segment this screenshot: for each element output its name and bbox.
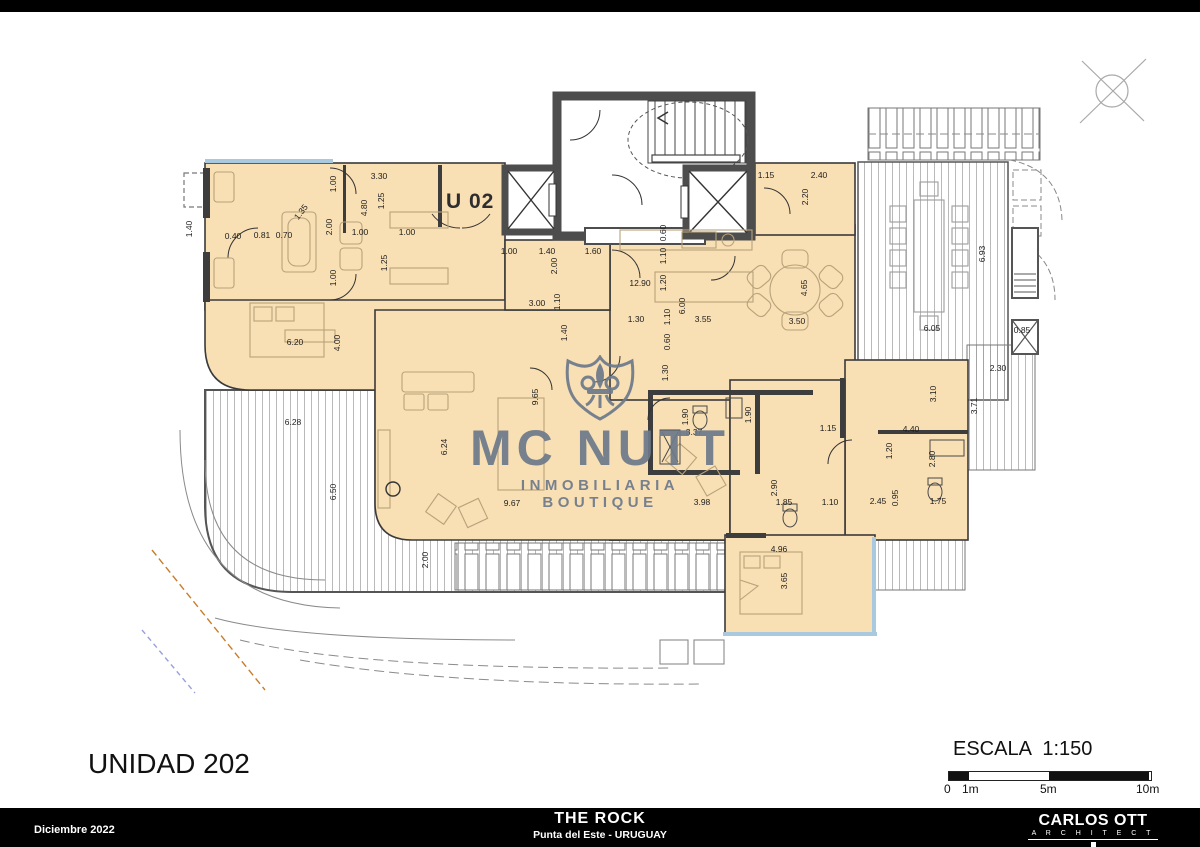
- dim-label: 1.10: [663, 309, 672, 326]
- service-elevator-right: [1012, 228, 1038, 354]
- dim-label: 2.00: [550, 258, 559, 275]
- dim-label: 1.25: [377, 193, 386, 210]
- dim-label: 3.71: [970, 398, 979, 415]
- dim-label: 1.40: [185, 221, 194, 238]
- dim-label: 6.20: [287, 338, 304, 347]
- dim-label: 2.45: [870, 497, 887, 506]
- dim-label: 1.60: [585, 247, 602, 256]
- architect-subtitle: A R C H I T E C T: [1028, 830, 1158, 840]
- dim-label: 3.30: [371, 172, 388, 181]
- dim-label: 4.80: [360, 200, 369, 217]
- dim-label: 4.00: [333, 335, 342, 352]
- dim-label: 0.60: [659, 225, 668, 242]
- dim-label: 1.00: [501, 247, 518, 256]
- dim-label: 1.15: [820, 424, 837, 433]
- scale-bar-ticks: 01m5m10m: [940, 782, 1160, 796]
- north-compass-icon: [1080, 59, 1146, 123]
- dim-label: 1.00: [399, 228, 416, 237]
- dim-label: 1.75: [930, 497, 947, 506]
- dim-label: 2.00: [325, 219, 334, 236]
- project-name: THE ROCK: [0, 810, 1200, 828]
- dim-label: 1.10: [553, 294, 562, 311]
- dim-label: 2.80: [928, 451, 937, 468]
- dim-label: 9.67: [504, 499, 521, 508]
- dim-label: 1.00: [329, 270, 338, 287]
- dim-label: 1.30: [628, 315, 645, 324]
- dim-label: 1.10: [822, 498, 839, 507]
- dim-label: 6.93: [978, 246, 987, 263]
- scale-tick: 5m: [1040, 782, 1057, 796]
- dim-label: 6.05: [924, 324, 941, 333]
- project-location: Punta del Este - URUGUAY: [0, 829, 1200, 841]
- dim-label: 1.90: [681, 409, 690, 426]
- unit-tag-label: U 02: [446, 190, 494, 214]
- dim-label: 2.30: [990, 364, 1007, 373]
- title-block-footer: Diciembre 2022 THE ROCK Punta del Este -…: [0, 808, 1200, 847]
- dim-label: 0.40: [225, 232, 242, 241]
- dim-label: 3.98: [694, 498, 711, 507]
- dim-label: 1.40: [560, 325, 569, 342]
- floorplan-sheet: 1.400.400.810.701.352.001.001.003.304.80…: [0, 0, 1200, 847]
- dim-label: 1.10: [659, 248, 668, 265]
- scale-label: ESCALA 1:150: [953, 738, 1092, 761]
- scale-tick: 10m: [1136, 782, 1159, 796]
- elevator-right: [681, 168, 750, 236]
- dim-label: 4.40: [903, 425, 920, 434]
- dim-label: 2.40: [811, 171, 828, 180]
- scale-tick: 1m: [962, 782, 979, 796]
- scale-seg-1-5m: [969, 772, 1049, 780]
- scale-seg-5-10m: [1049, 772, 1149, 780]
- dim-label: 6.50: [329, 484, 338, 501]
- architect-logo: CARLOS OTT A R C H I T E C T: [1028, 812, 1158, 847]
- dim-label: 3.50: [789, 317, 806, 326]
- dim-label: 1.20: [659, 275, 668, 292]
- dim-label: 0.81: [254, 231, 271, 240]
- dim-label: 1.85: [776, 498, 793, 507]
- dim-label: 0.60: [663, 334, 672, 351]
- architect-logo-square: [1091, 842, 1096, 847]
- dim-label: 1.15: [758, 171, 775, 180]
- dim-label: 3.00: [529, 299, 546, 308]
- dim-label: 2.00: [421, 552, 430, 569]
- dim-label: 2.20: [801, 189, 810, 206]
- project-block: THE ROCK Punta del Este - URUGUAY: [0, 810, 1200, 841]
- dim-label: 3.10: [929, 386, 938, 403]
- scale-bar: [948, 771, 1152, 781]
- floorplan-drawing: [0, 0, 1200, 760]
- dim-label: 0.85: [1014, 326, 1031, 335]
- dim-label: 1.20: [885, 443, 894, 460]
- dim-label: 1.30: [661, 365, 670, 382]
- dim-label: 12.90: [629, 279, 650, 288]
- dim-label: 3.65: [780, 573, 789, 590]
- dim-label: 3.37: [686, 428, 703, 437]
- dim-label: 4.65: [800, 280, 809, 297]
- unit-title: UNIDAD 202: [88, 748, 250, 780]
- dim-label: 0.95: [891, 490, 900, 507]
- scale-tick: 0: [944, 782, 951, 796]
- dim-label: 4.96: [771, 545, 788, 554]
- dim-label: 2.90: [770, 480, 779, 497]
- scale-seg-0-1m: [949, 772, 969, 780]
- dim-label: 1.40: [539, 247, 556, 256]
- dim-label: 1.00: [352, 228, 369, 237]
- architect-name: CARLOS OTT: [1028, 812, 1158, 830]
- dim-label: 6.24: [440, 439, 449, 456]
- dim-label: 6.00: [678, 298, 687, 315]
- elevator-left: [505, 168, 557, 232]
- dim-label: 1.90: [744, 407, 753, 424]
- dim-label: 6.28: [285, 418, 302, 427]
- dim-label: 0.70: [276, 231, 293, 240]
- dim-label: 1.00: [329, 176, 338, 193]
- dim-label: 3.55: [695, 315, 712, 324]
- dim-label: 1.25: [380, 255, 389, 272]
- dim-label: 9.65: [531, 389, 540, 406]
